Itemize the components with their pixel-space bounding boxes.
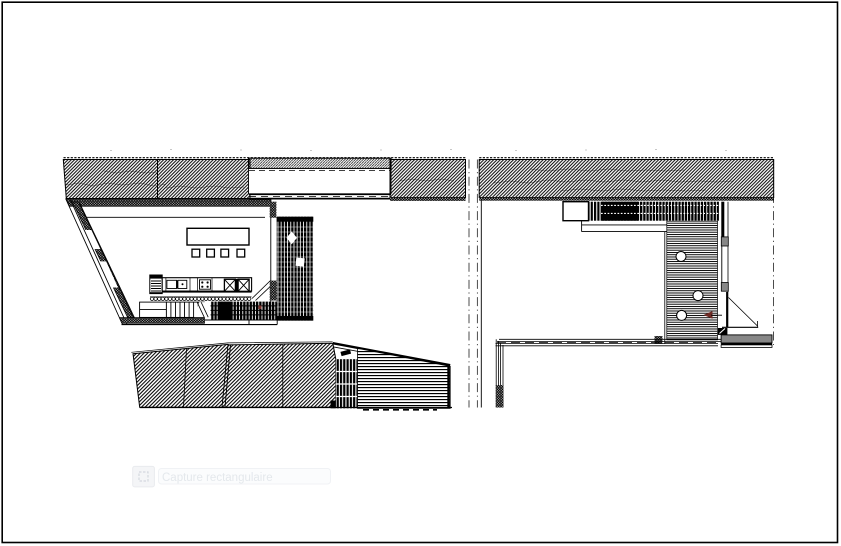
svg-text:Capture rectangulaire: Capture rectangulaire (162, 472, 273, 484)
